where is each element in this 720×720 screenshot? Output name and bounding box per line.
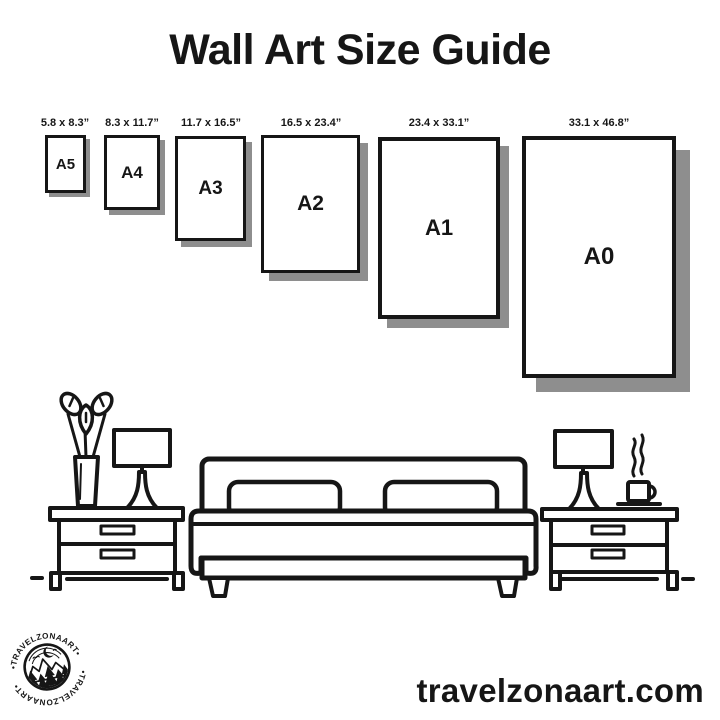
page-title: Wall Art Size Guide — [0, 26, 720, 75]
drawer-handle — [592, 550, 624, 558]
size-frame-a0: A0 — [522, 136, 676, 378]
size-frame-a5: A5 — [45, 135, 86, 193]
table-lamp-right-icon — [555, 431, 612, 509]
size-frame-a3: A3 — [175, 136, 246, 241]
size-label-a2: A2 — [297, 192, 324, 216]
website-url: travelzonaart.com — [416, 672, 704, 710]
size-label-a4: A4 — [121, 163, 143, 183]
bedroom-illustration — [15, 378, 705, 618]
brand-logo-badge: •TRAVELZONAART• •TRAVELZONAART• — [4, 624, 90, 710]
size-frame-a1: A1 — [378, 137, 500, 319]
size-label-a1: A1 — [425, 215, 453, 241]
bed-base — [202, 558, 525, 578]
nightstand-left-icon — [50, 508, 183, 589]
size-frame-a2: A2 — [261, 135, 360, 273]
table-lamp-left-icon — [114, 430, 170, 508]
bed-icon — [191, 459, 536, 596]
bed-leg — [209, 578, 228, 596]
drawer-handle — [592, 526, 624, 534]
plant-vase-icon — [57, 390, 116, 506]
size-label-a0: A0 — [584, 243, 615, 271]
size-label-a3: A3 — [198, 178, 222, 200]
coffee-cup-icon — [618, 435, 660, 504]
size-dimensions-a2: 16.5 x 23.4” — [241, 117, 381, 129]
drawer-handle — [101, 550, 134, 558]
size-label-a5: A5 — [56, 156, 75, 173]
size-dimensions-a1: 23.4 x 33.1” — [369, 117, 509, 129]
size-frame-a4: A4 — [104, 135, 160, 210]
nightstand-right-icon — [542, 509, 677, 589]
size-dimensions-a0: 33.1 x 46.8” — [529, 117, 669, 129]
bed-leg — [498, 578, 517, 596]
drawer-handle — [101, 526, 134, 534]
size-guide-infographic: Wall Art Size Guide 5.8 x 8.3” 8.3 x 11.… — [0, 0, 720, 720]
